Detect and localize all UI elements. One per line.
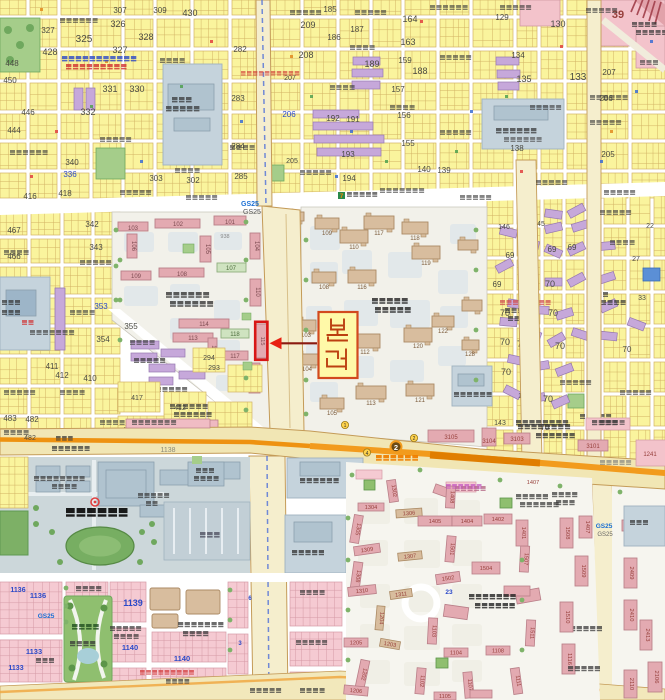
svg-text:104: 104 (253, 241, 259, 252)
svg-text:109: 109 (322, 231, 333, 237)
svg-text:303: 303 (149, 174, 163, 183)
svg-text:1404: 1404 (461, 519, 473, 525)
svg-text:325: 325 (76, 34, 93, 45)
svg-text:112: 112 (360, 350, 370, 356)
svg-text:27: 27 (632, 256, 640, 263)
svg-text:326: 326 (110, 19, 125, 29)
svg-text:133: 133 (570, 72, 587, 83)
svg-text:188: 188 (412, 66, 427, 76)
svg-text:1508: 1508 (564, 527, 570, 540)
svg-text:193: 193 (341, 150, 355, 159)
svg-text:1402: 1402 (492, 517, 504, 523)
svg-text:482: 482 (25, 415, 39, 424)
svg-text:107: 107 (226, 266, 237, 272)
svg-text:117: 117 (230, 354, 240, 360)
svg-text:119: 119 (421, 261, 431, 267)
svg-text:209: 209 (300, 20, 315, 30)
svg-text:1108: 1108 (492, 649, 504, 655)
svg-text:1116: 1116 (566, 653, 572, 665)
svg-text:110: 110 (349, 245, 359, 251)
svg-text:1102: 1102 (418, 675, 425, 688)
svg-text:444: 444 (7, 126, 21, 135)
svg-text:417: 417 (131, 395, 143, 402)
svg-text:410: 410 (83, 374, 97, 383)
svg-text:412: 412 (55, 371, 69, 380)
svg-text:1205: 1205 (350, 641, 362, 647)
svg-text:309: 309 (153, 6, 167, 15)
svg-text:33: 33 (638, 295, 646, 302)
svg-text:1241: 1241 (643, 452, 657, 458)
svg-text:GS25: GS25 (38, 613, 55, 620)
svg-text:106: 106 (130, 241, 136, 252)
svg-text:448: 448 (5, 59, 19, 68)
svg-text:1136: 1136 (30, 591, 46, 600)
svg-text:120: 120 (413, 344, 424, 350)
svg-text:1104: 1104 (450, 651, 462, 657)
svg-text:1405: 1405 (429, 519, 441, 525)
svg-text:128: 128 (465, 352, 476, 358)
svg-text:3105: 3105 (444, 435, 458, 441)
svg-text:1510: 1510 (564, 611, 570, 624)
svg-text:114: 114 (199, 322, 209, 328)
svg-text:115: 115 (259, 337, 265, 346)
svg-text:354: 354 (96, 335, 110, 344)
svg-text:GS25: GS25 (596, 523, 613, 530)
svg-text:70: 70 (548, 308, 558, 318)
svg-text:157: 157 (391, 85, 405, 94)
svg-text:3103: 3103 (510, 437, 524, 443)
svg-text:482: 482 (24, 435, 36, 442)
svg-text:69: 69 (493, 280, 502, 289)
svg-text:1133: 1133 (26, 647, 42, 656)
svg-text:466: 466 (7, 252, 21, 261)
svg-text:4: 4 (366, 451, 369, 457)
svg-text:938: 938 (220, 234, 229, 240)
svg-text:1504: 1504 (480, 566, 492, 572)
svg-text:GS25: GS25 (597, 532, 613, 538)
svg-text:108: 108 (177, 272, 188, 278)
svg-text:206: 206 (282, 110, 296, 119)
svg-text:105: 105 (327, 411, 338, 417)
svg-text:70: 70 (545, 279, 555, 289)
svg-text:418: 418 (58, 189, 72, 198)
svg-text:1304: 1304 (365, 505, 377, 511)
svg-text:293: 293 (208, 365, 220, 372)
svg-text:205: 205 (601, 150, 615, 159)
svg-text:70: 70 (500, 337, 510, 347)
svg-text:134: 134 (511, 51, 525, 60)
svg-text:3104: 3104 (482, 439, 496, 445)
svg-text:110: 110 (254, 287, 260, 297)
svg-text:23: 23 (445, 589, 453, 596)
svg-text:1133: 1133 (8, 665, 23, 672)
svg-text:2: 2 (394, 443, 398, 452)
svg-text:116: 116 (357, 285, 367, 291)
svg-text:69: 69 (548, 245, 557, 254)
svg-text:1401: 1401 (520, 527, 526, 539)
svg-text:105: 105 (204, 244, 210, 255)
svg-text:1140: 1140 (122, 643, 138, 652)
svg-text:1407: 1407 (527, 480, 539, 486)
svg-text:113: 113 (366, 401, 376, 407)
svg-text:139: 139 (437, 166, 451, 175)
svg-text:1105: 1105 (439, 694, 451, 700)
svg-text:191: 191 (346, 115, 360, 124)
svg-text:282: 282 (233, 45, 247, 54)
svg-text:1501: 1501 (448, 543, 455, 556)
svg-text:307: 307 (113, 6, 127, 15)
svg-text:22: 22 (646, 223, 654, 230)
svg-text:104: 104 (302, 367, 313, 373)
svg-text:2410: 2410 (628, 609, 634, 622)
svg-text:102: 102 (173, 222, 184, 228)
svg-text:302: 302 (186, 176, 200, 185)
svg-text:1139: 1139 (123, 598, 143, 608)
svg-text:1: 1 (344, 423, 347, 429)
svg-text:143: 143 (494, 420, 506, 427)
svg-text:69: 69 (506, 251, 515, 260)
svg-text:1107: 1107 (466, 679, 473, 692)
svg-text:GS25: GS25 (241, 201, 259, 208)
svg-text:121: 121 (415, 398, 426, 404)
svg-text:118: 118 (410, 236, 420, 242)
svg-text:103: 103 (128, 226, 139, 232)
svg-text:483: 483 (3, 414, 17, 423)
svg-text:70: 70 (501, 367, 511, 377)
svg-text:1136: 1136 (10, 587, 25, 594)
svg-text:294: 294 (203, 355, 215, 362)
svg-text:327: 327 (112, 45, 127, 55)
svg-text:108: 108 (319, 285, 330, 291)
svg-text:353: 353 (94, 302, 108, 311)
svg-text:1138: 1138 (160, 447, 175, 454)
svg-text:343: 343 (89, 243, 103, 252)
svg-text:146: 146 (498, 224, 510, 231)
svg-text:450: 450 (3, 76, 17, 85)
svg-text:467: 467 (7, 226, 21, 235)
svg-text:332: 332 (80, 107, 95, 117)
svg-text:430: 430 (182, 8, 197, 18)
svg-text:69: 69 (568, 243, 577, 252)
svg-text:1509: 1509 (580, 565, 586, 578)
svg-text:130: 130 (550, 19, 565, 29)
svg-text:1206: 1206 (349, 688, 362, 695)
svg-text:342: 342 (85, 220, 99, 229)
svg-text:416: 416 (23, 192, 37, 201)
svg-text:113: 113 (188, 336, 198, 342)
svg-text:2413: 2413 (644, 629, 650, 642)
svg-text:70: 70 (543, 394, 553, 404)
svg-text:283: 283 (231, 94, 245, 103)
svg-text:328: 328 (138, 32, 153, 42)
svg-text:185: 185 (323, 5, 337, 14)
svg-text:2409: 2409 (628, 567, 634, 580)
svg-text:205: 205 (286, 158, 298, 165)
svg-text:2110: 2110 (628, 678, 634, 690)
svg-text:155: 155 (401, 139, 415, 148)
svg-text:2: 2 (413, 436, 416, 442)
svg-text:340: 340 (65, 158, 79, 167)
svg-text:1511: 1511 (528, 627, 535, 639)
svg-text:135: 135 (516, 74, 531, 84)
svg-text:330: 330 (129, 84, 144, 94)
svg-text:163: 163 (400, 37, 415, 47)
svg-text:122: 122 (438, 329, 449, 335)
svg-text:138: 138 (510, 144, 524, 153)
svg-text:327: 327 (41, 26, 55, 35)
svg-text:101: 101 (225, 220, 236, 226)
svg-text:186: 186 (327, 33, 341, 42)
svg-text:207: 207 (602, 68, 616, 77)
svg-text:285: 285 (234, 172, 248, 181)
svg-text:331: 331 (102, 84, 117, 94)
svg-text:1103: 1103 (430, 625, 437, 637)
svg-text:GS25: GS25 (243, 209, 261, 216)
svg-text:446: 446 (21, 108, 35, 117)
svg-text:1407: 1407 (584, 521, 590, 534)
svg-text:194: 194 (342, 174, 356, 183)
svg-text:140: 140 (417, 165, 431, 174)
svg-text:1204: 1204 (377, 612, 384, 625)
svg-text:164: 164 (402, 14, 417, 24)
svg-text:70: 70 (555, 341, 565, 351)
svg-text:208: 208 (298, 50, 313, 60)
svg-text:1408: 1408 (448, 491, 455, 504)
svg-text:428: 428 (42, 47, 57, 57)
svg-text:187: 187 (350, 25, 364, 34)
svg-text:70: 70 (623, 345, 632, 354)
svg-text:411: 411 (46, 362, 59, 371)
svg-text:156: 156 (397, 111, 411, 120)
svg-text:1306: 1306 (403, 511, 416, 518)
svg-text:1140: 1140 (174, 654, 190, 663)
svg-text:3101: 3101 (586, 444, 600, 450)
svg-text:355: 355 (124, 322, 138, 331)
svg-text:336: 336 (63, 170, 77, 179)
svg-text:189: 189 (364, 59, 379, 69)
svg-text:207: 207 (284, 75, 296, 82)
svg-text:2106: 2106 (653, 671, 659, 684)
svg-text:192: 192 (326, 114, 340, 123)
svg-text:117: 117 (374, 231, 384, 237)
svg-text:159: 159 (398, 56, 412, 65)
svg-text:118: 118 (230, 332, 240, 338)
svg-text:109: 109 (131, 274, 142, 280)
svg-text:129: 129 (495, 13, 509, 22)
